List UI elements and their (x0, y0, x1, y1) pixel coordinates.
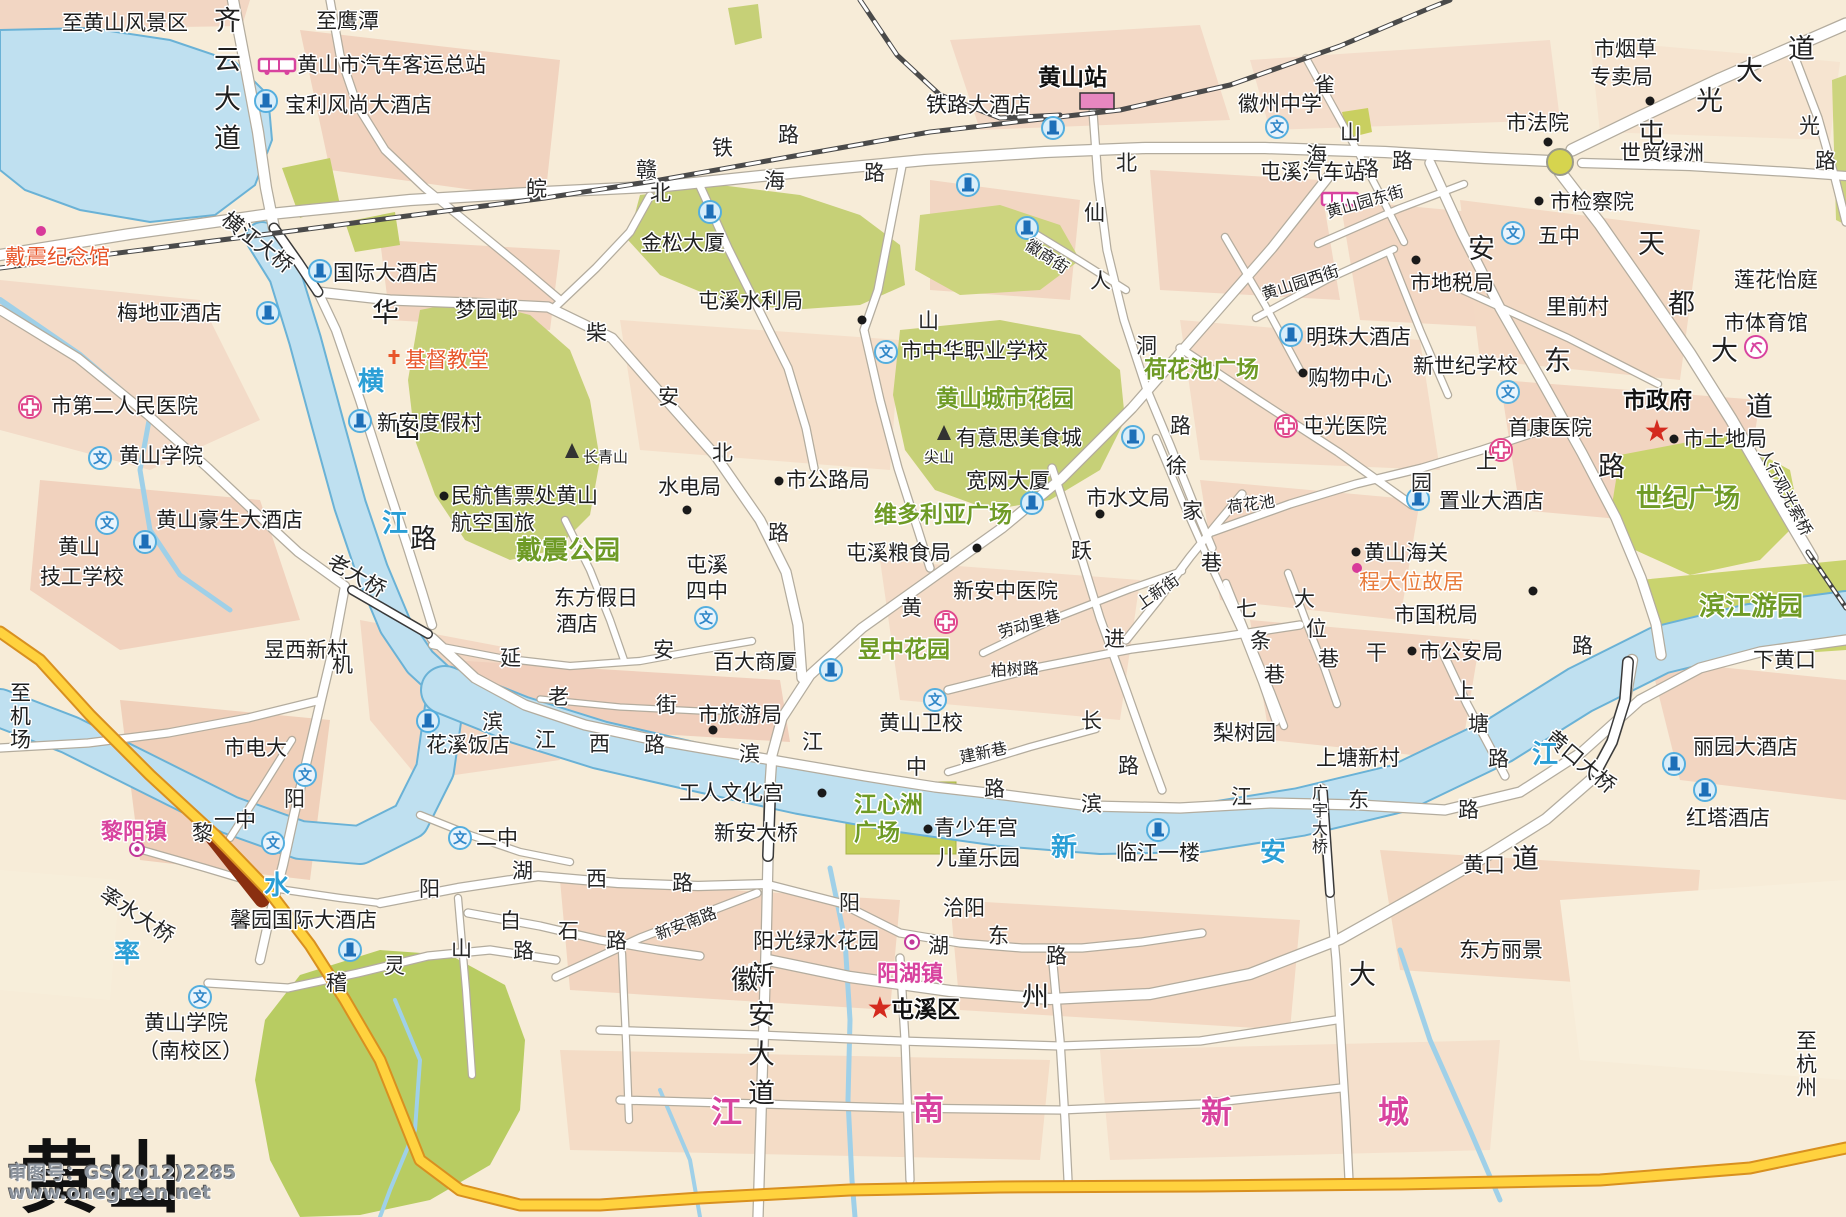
school-icon: 文 (924, 689, 946, 711)
map-label: 临江一楼 (1116, 841, 1200, 865)
map-label: 市公路局 (786, 468, 870, 492)
map-label: 屯溪汽车站 (1260, 160, 1365, 184)
map-label: 屯溪水利局 (698, 289, 803, 313)
map-label: 白 (500, 909, 521, 933)
map-label: 路 (672, 871, 693, 895)
poi-dot (1299, 369, 1308, 378)
map-label: 屯溪粮食局 (846, 541, 951, 565)
map-label: 路 (1046, 944, 1067, 968)
poi-dot (683, 506, 692, 515)
map-label: 江 (1231, 785, 1252, 809)
map-label: 馨园国际大酒店 (230, 908, 377, 932)
map-label: 天 (1638, 229, 1665, 260)
map-label: 机 (332, 653, 353, 677)
map-label: 四中 (686, 579, 728, 603)
map-label: 阳 (284, 787, 305, 811)
map-label: 巷 (1318, 647, 1339, 671)
map-label: 购物中心 (1308, 366, 1392, 390)
map-label: 市电大 (224, 736, 287, 760)
map-label: 屯 (1638, 119, 1665, 150)
city-map-canvas: 文文文文文文文文文文文文★★ 至黄山风景区至鹰潭黄山市汽车客运总站宝利风尚大酒店… (0, 0, 1846, 1217)
poi-dot (1352, 548, 1361, 557)
svg-text:文: 文 (1506, 225, 1521, 242)
map-label: 一中 (214, 808, 256, 832)
map-label: 进 (1104, 627, 1125, 651)
hotel-icon (1016, 217, 1038, 239)
hotel-icon (339, 939, 361, 961)
map-label: 基督教堂 (405, 348, 489, 372)
map-label: 江 (382, 509, 408, 539)
map-label: 滨江游园 (1699, 591, 1803, 622)
map-label: 程大位故居 (1359, 570, 1464, 594)
map-label: 条 (1250, 629, 1271, 653)
map-label: 安 (658, 385, 679, 409)
map-label: 梨树园 (1213, 721, 1276, 745)
map-label: 丽园大酒店 (1693, 735, 1798, 759)
map-label: 青少年宫 (934, 816, 1018, 840)
map-label: 中 (906, 755, 927, 779)
map-label: 阳光绿水花园 (753, 929, 879, 953)
roundabout-marker (1547, 149, 1573, 175)
map-label: 灵 (384, 954, 405, 978)
map-label: 海 (764, 169, 785, 193)
map-label: 维多利亚广场 (874, 501, 1012, 528)
svg-text:文: 文 (879, 344, 894, 361)
map-label: 柏树路 (990, 659, 1039, 680)
map-label: 民航售票处黄山 (451, 484, 598, 508)
map-label: 广场 (854, 819, 900, 846)
map-label: 石 (558, 919, 579, 943)
map-label: 新 (1201, 1095, 1232, 1131)
map-label: 东 (988, 924, 1009, 948)
hotel-icon (1147, 819, 1169, 841)
map-label: 安 (1468, 234, 1495, 265)
map-label: 皖 (526, 177, 547, 201)
map-label: 路 (778, 123, 799, 147)
poi-dot (1096, 510, 1105, 519)
map-label: 滨 (739, 742, 760, 766)
svg-text:文: 文 (928, 692, 943, 709)
poi-dot (1529, 587, 1538, 596)
stadium-icon (1745, 336, 1767, 358)
svg-text:文: 文 (699, 610, 714, 627)
map-label: 路 (1392, 149, 1413, 173)
school-icon: 文 (449, 827, 471, 849)
map-label: 横 (358, 367, 384, 397)
map-label: 道 (1788, 34, 1815, 65)
map-label: 航空国旅 (451, 511, 535, 535)
map-label: 街 (656, 693, 677, 717)
map-label: 市国税局 (1394, 603, 1478, 627)
map-label: 水 (264, 871, 291, 901)
map-label: 新安度假村 (377, 411, 482, 435)
map-label: 江 (711, 1095, 742, 1131)
map-label: 路 (644, 733, 665, 757)
map-label: 下黄口 (1753, 648, 1816, 672)
map-label: 二中 (476, 826, 518, 850)
map-label: 路 (1815, 149, 1836, 173)
map-label: 花溪饭店 (426, 733, 510, 757)
school-icon: 文 (1497, 381, 1519, 403)
map-label: 市旅游局 (698, 703, 782, 727)
map-label: 昱中花园 (858, 637, 950, 663)
map-area (950, 900, 1300, 1030)
hotel-icon (957, 174, 979, 196)
watermark-approval-number: 审图号：GS(2012)2285 (8, 1164, 236, 1184)
map-label: 五中 (1538, 224, 1580, 248)
svg-text:文: 文 (93, 450, 108, 467)
map-label: 路 (1118, 754, 1139, 778)
map-label: 市水文局 (1086, 486, 1170, 510)
map-label: 至鹰潭 (316, 9, 379, 33)
map-label: 里前村 (1546, 295, 1609, 319)
railway-station-marker (1080, 93, 1114, 109)
map-label: 东方假日 (554, 586, 638, 610)
map-label: 市体育馆 (1724, 311, 1808, 335)
map-label: 江 (802, 730, 823, 754)
map-label: 上 (1454, 679, 1475, 703)
map-label: 位 (1306, 617, 1327, 641)
map-label: 徽 (731, 965, 758, 996)
poi-dot (973, 544, 982, 553)
map-label: 都 (1668, 289, 1695, 320)
hotel-icon (134, 531, 156, 553)
map-watermark: 审图号：GS(2012)2285 www.onegreen.net (8, 1164, 236, 1204)
map-label: 路 (513, 939, 534, 963)
town-marker-icon (905, 935, 919, 949)
map-label: 安 (1260, 838, 1286, 868)
hotel-icon (257, 302, 279, 324)
poi-dot (1646, 97, 1655, 106)
map-label: 市公安局 (1419, 640, 1503, 664)
map-label: 光 (1696, 86, 1723, 117)
map-label: 大 (1349, 960, 1376, 991)
map-label: 长 (1081, 709, 1102, 733)
map-label: 西 (586, 867, 607, 891)
map-label: 率 (114, 938, 140, 969)
map-label: 市烟草 (1594, 37, 1657, 61)
map-label: 湖 (928, 934, 949, 958)
school-icon: 文 (695, 607, 717, 629)
map-label: 北 (712, 441, 733, 465)
church-cross-icon (389, 350, 400, 364)
map-label: 至机场 (10, 681, 31, 752)
map-area (0, 870, 120, 1000)
map-label: 光 (1799, 114, 1820, 138)
map-label: 路 (1572, 634, 1593, 658)
map-label: 赣 (636, 158, 657, 182)
map-label: 江 (535, 728, 556, 752)
map-label: 至杭州 (1796, 1029, 1817, 1100)
map-label: 黄山学院 (119, 444, 203, 468)
map-label: 宝利风尚大酒店 (285, 93, 432, 117)
map-label: 新世纪学校 (1413, 354, 1518, 378)
map-label: 路 (410, 524, 437, 555)
map-label: 华 (372, 298, 399, 329)
school-icon: 文 (1266, 116, 1288, 138)
map-label: 江 (1532, 740, 1558, 770)
school-icon: 文 (96, 512, 118, 534)
school-icon: 文 (294, 764, 316, 786)
map-label: 路 (768, 521, 789, 545)
map-label: 黄山市汽车客运总站 (297, 53, 486, 77)
map-label: 技工学校 (40, 565, 124, 589)
map-label: 黎 (192, 821, 213, 845)
poi-dot (1412, 256, 1421, 265)
map-label: 铁路大酒店 (926, 93, 1031, 117)
map-label: 东 (1544, 346, 1571, 377)
map-label: 阳湖镇 (877, 962, 943, 987)
map-label: 新安中医院 (953, 579, 1058, 603)
map-label: 路 (1170, 414, 1191, 438)
map-label: 阳 (419, 877, 440, 901)
map-label: 城 (1378, 1095, 1409, 1131)
map-label: 延 (500, 646, 521, 670)
hotel-icon (820, 659, 842, 681)
hotel-icon (417, 710, 439, 732)
map-label: （南校区） (138, 1039, 243, 1063)
map-label: 新安大桥 (714, 821, 798, 845)
school-icon: 文 (89, 447, 111, 469)
map-label: 世纪广场 (1636, 483, 1740, 514)
watermark-site: www.onegreen.net (8, 1184, 236, 1204)
map-label: 长青山 (583, 448, 628, 466)
svg-text:★: ★ (867, 991, 894, 1026)
map-label: 黄山站 (1038, 65, 1107, 91)
map-label: 广宇大桥 (1312, 783, 1328, 856)
map-label: 百大商厦 (713, 650, 797, 674)
map-label: 北 (1116, 151, 1137, 175)
map-label: 专卖局 (1590, 65, 1653, 89)
map-label: 有意思美食城 (956, 426, 1082, 450)
map-label: 黄山豪生大酒店 (156, 508, 303, 532)
government-star-icon: ★ (867, 991, 894, 1026)
map-label: 江心洲 (854, 792, 923, 818)
map-label: 上塘新村 (1316, 746, 1400, 770)
map-label: 酒店 (556, 612, 598, 636)
map-label: 稽 (326, 971, 347, 995)
map-label: 黄山城市花园 (936, 385, 1074, 412)
map-label: 山 (918, 309, 939, 333)
map-label: 铁 (712, 136, 733, 160)
map-label: 戴震公园 (516, 535, 620, 566)
poi-dot (1408, 647, 1417, 656)
map-label: 市土地局 (1683, 427, 1767, 451)
map-label: 宽网大厦 (966, 469, 1050, 493)
map-label: 南 (913, 1092, 944, 1128)
map-label: 路 (1458, 798, 1479, 822)
svg-text:文: 文 (193, 989, 208, 1006)
map-label: 东方丽景 (1459, 938, 1543, 962)
map-label: 屯光医院 (1303, 414, 1387, 438)
svg-text:★: ★ (1644, 414, 1671, 449)
map-label: 大 (1294, 587, 1315, 611)
map-label: 山 (451, 937, 472, 961)
hotel-icon (1280, 324, 1302, 346)
map-label: 园 (1411, 471, 1432, 495)
svg-text:文: 文 (100, 515, 115, 532)
map-label: 路 (606, 929, 627, 953)
map-label: 明珠大酒店 (1306, 325, 1411, 349)
map-label: 屯溪 (686, 553, 728, 577)
map-label: 徐 (1166, 454, 1187, 478)
hotel-icon (1122, 426, 1144, 448)
map-label: 上 (1476, 449, 1497, 473)
map-label: 家 (1182, 499, 1203, 523)
poi-dot (924, 825, 933, 834)
map-label: 荷花池广场 (1144, 356, 1259, 383)
map-label: 州 (1022, 982, 1049, 1013)
map-label: 阳 (839, 891, 860, 915)
poi-marker-magenta (36, 226, 46, 236)
map-label: 路 (1598, 452, 1625, 483)
map-label: 洽阳 (943, 896, 985, 920)
svg-text:文: 文 (453, 830, 468, 847)
hotel-icon (1042, 117, 1064, 139)
map-label: 黎阳镇 (101, 819, 167, 845)
map-label: 东 (1348, 788, 1369, 812)
map-label: 市中华职业学校 (901, 339, 1048, 363)
map-label: 大 (1736, 56, 1763, 87)
map-label: 黄 (901, 596, 922, 620)
map-label: 滨 (1081, 792, 1102, 816)
map-label: 黄山海关 (1364, 541, 1448, 565)
map-label: 市政府 (1623, 387, 1692, 414)
poi-dot (1544, 138, 1553, 147)
map-label: 道 (1512, 844, 1539, 875)
map-label: 雀 (1314, 73, 1335, 97)
map-label: 七 (1236, 597, 1257, 621)
map-label: 山 (1340, 121, 1361, 145)
map-label: 洞 (1136, 334, 1157, 358)
school-icon: 文 (262, 832, 284, 854)
map-label: 大 (1711, 336, 1738, 367)
map-label: 滨 (482, 710, 503, 734)
map-label: 人 (1090, 269, 1111, 293)
map-label: 至黄山风景区 (62, 11, 188, 35)
map-label: 跃 (1071, 539, 1092, 563)
map-label: 首康医院 (1508, 416, 1592, 440)
map-label: 工人文化宫 (679, 781, 784, 805)
hospital-icon (1275, 415, 1297, 437)
map-label: 莲花怡庭 (1734, 268, 1818, 292)
map-label: 水电局 (658, 475, 721, 499)
map-label: 市检察院 (1550, 190, 1634, 214)
hotel-icon (1694, 779, 1716, 801)
map-label: 黄山卫校 (879, 711, 963, 735)
bus-icon (259, 59, 295, 75)
poi-dot (858, 316, 867, 325)
map-label: 金松大厦 (641, 231, 725, 255)
map-label: 湖 (512, 859, 533, 883)
map-label: 西 (589, 732, 610, 756)
svg-text:文: 文 (298, 767, 313, 784)
map-label: 徽州中学 (1238, 92, 1322, 116)
poi-dot (440, 492, 449, 501)
svg-text:文: 文 (1501, 384, 1516, 401)
hotel-icon (309, 260, 331, 282)
poi-dot (1535, 197, 1544, 206)
svg-text:文: 文 (1270, 119, 1285, 136)
map-label: 干 (1366, 641, 1387, 665)
map-label: 巷 (1264, 663, 1285, 687)
school-icon: 文 (875, 341, 897, 363)
huangshan-city-map: 文文文文文文文文文文文文★★ 至黄山风景区至鹰潭黄山市汽车客运总站宝利风尚大酒店… (0, 0, 1846, 1217)
school-icon: 文 (189, 986, 211, 1008)
map-label: 市第二人民医院 (51, 394, 198, 418)
school-icon: 文 (1502, 222, 1524, 244)
map-label: 安 (653, 638, 674, 662)
map-label: 黄山 (58, 535, 100, 559)
map-label: 置业大酒店 (1439, 489, 1544, 513)
hospital-icon (19, 396, 41, 418)
hotel-icon (255, 90, 277, 112)
poi-dot (775, 477, 784, 486)
hospital-icon (935, 611, 957, 633)
hotel-icon (349, 410, 371, 432)
map-label: 儿童乐园 (936, 846, 1020, 870)
map-label: 路 (984, 777, 1005, 801)
map-label: 塘 (1468, 712, 1489, 736)
poi-dot (1670, 435, 1679, 444)
map-label: 路 (1488, 747, 1509, 771)
map-label: 国际大酒店 (333, 261, 438, 285)
hotel-icon (699, 201, 721, 223)
hotel-icon (1663, 753, 1685, 775)
map-label: 市地税局 (1410, 271, 1494, 295)
poi-dot (818, 789, 827, 798)
map-label: 柴 (586, 321, 607, 345)
map-label: 梅地亚酒店 (117, 301, 222, 325)
map-label: 尖山 (924, 448, 954, 466)
map-label: 屯溪区 (891, 997, 960, 1023)
map-label: 黄口 (1463, 853, 1505, 877)
map-label: 北 (650, 181, 671, 205)
map-label: 戴震纪念馆 (5, 245, 110, 269)
map-label: 路 (864, 161, 885, 185)
map-label: 老 (548, 685, 569, 709)
map-label: 黄山学院 (144, 1011, 228, 1035)
map-label: 道 (1746, 392, 1773, 423)
government-star-icon: ★ (1644, 414, 1671, 449)
map-area (728, 4, 762, 45)
map-label: 市法院 (1506, 111, 1569, 135)
map-label: 红塔酒店 (1686, 806, 1770, 830)
svg-text:文: 文 (266, 835, 281, 852)
map-label: 巷 (1201, 551, 1222, 575)
map-label: 梦园邨 (455, 298, 518, 322)
map-label: 仙 (1084, 201, 1105, 225)
map-label: 新 (1051, 832, 1077, 863)
hotel-icon (1021, 492, 1043, 514)
